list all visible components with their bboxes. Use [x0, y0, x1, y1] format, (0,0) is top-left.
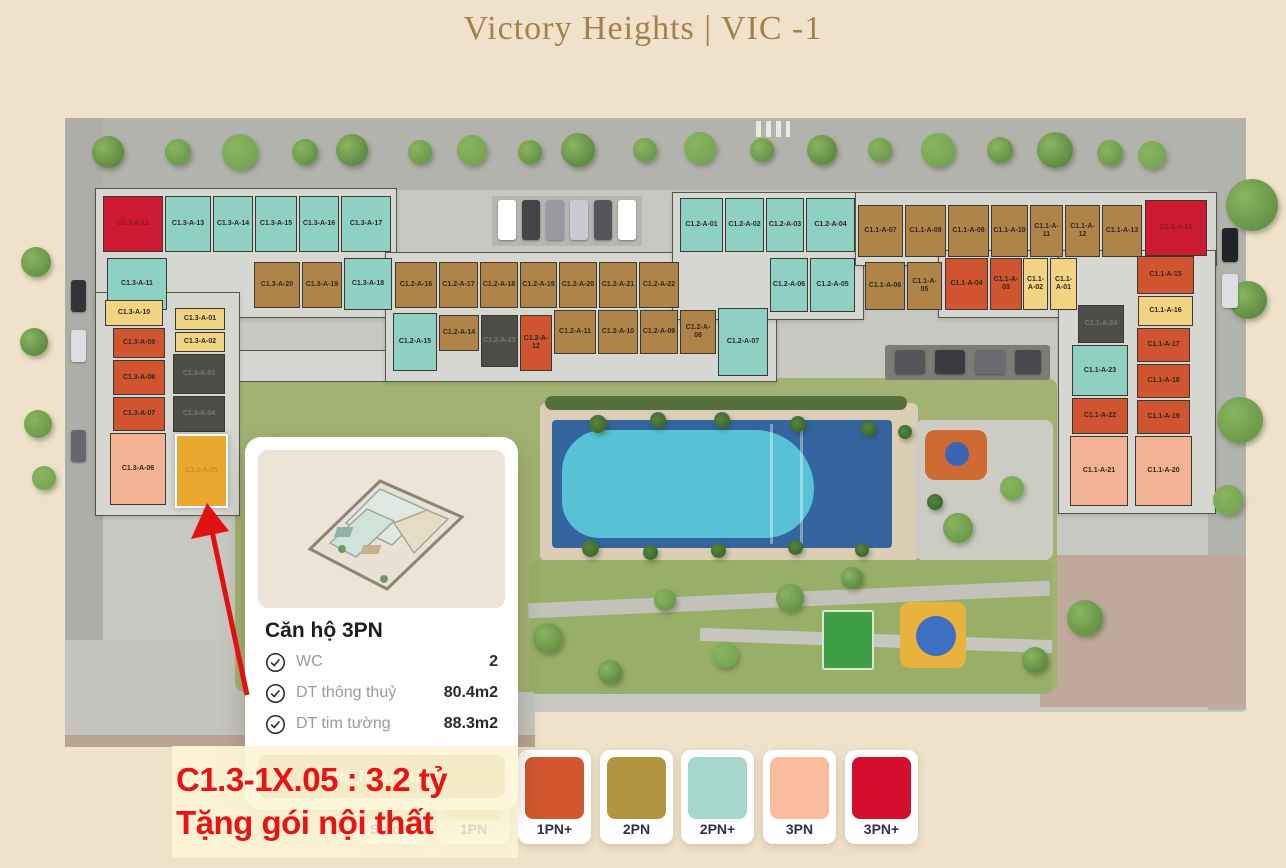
spec-value: 88.3m2 — [444, 715, 498, 733]
legend-swatch — [607, 757, 666, 819]
map-unit-C1.3-A-16[interactable]: C1.3-A-16 — [299, 196, 339, 252]
tree-icon — [987, 137, 1013, 163]
map-unit-C1.1-A-08[interactable]: C1.1-A-08 — [905, 205, 946, 257]
tree-icon — [561, 133, 595, 167]
map-unit-C1.1-A-12[interactable]: C1.1-A-12 — [1065, 205, 1100, 257]
map-unit-C1.1-A-21[interactable]: C1.1-A-21 — [1070, 436, 1128, 506]
map-unit-C1.2-A-16[interactable]: C1.2-A-16 — [395, 262, 437, 308]
map-unit-C1.1-A-05[interactable]: C1.1-A-05 — [907, 262, 942, 310]
map-unit-C1.1-A-03[interactable]: C1.1-A-03 — [990, 258, 1022, 310]
map-unit-C1.2-A-12[interactable]: C1.2-A-12 — [520, 315, 552, 371]
tree-icon — [1213, 485, 1243, 515]
map-unit-C1.2-A-14[interactable]: C1.2-A-14 — [439, 315, 479, 351]
map-unit-C1.2-A-13[interactable]: C1.2-A-13 — [481, 315, 518, 367]
map-unit-C1.3-A-08[interactable]: C1.3-A-08 — [113, 360, 165, 395]
map-unit-C1.3-A-06[interactable]: C1.3-A-06 — [110, 433, 166, 505]
car-icon — [570, 200, 588, 240]
tree-icon — [807, 135, 837, 165]
map-unit-C1.2-A-08[interactable]: C1.2-A-08 — [680, 310, 716, 354]
map-unit-C1.3-A-18[interactable]: C1.3-A-18 — [344, 258, 392, 310]
car-icon — [895, 350, 925, 374]
map-unit-C1.1-A-02[interactable]: C1.1-A-02 — [1023, 258, 1048, 310]
map-unit-C1.2-A-22[interactable]: C1.2-A-22 — [639, 262, 679, 308]
legend-label: 3PN+ — [845, 821, 918, 837]
map-unit-C1.1-A-23[interactable]: C1.1-A-23 — [1072, 345, 1128, 396]
tree-icon — [841, 567, 863, 589]
map-unit-C1.3-A-17[interactable]: C1.3-A-17 — [341, 196, 391, 252]
map-unit-C1.1-A-13[interactable]: C1.1-A-13 — [1102, 205, 1142, 257]
map-unit-C1.2-A-06[interactable]: C1.2-A-06 — [770, 258, 808, 312]
car-icon — [594, 200, 612, 240]
pool-lane-line — [770, 424, 773, 544]
map-unit-C1.2-A-03[interactable]: C1.2-A-03 — [766, 198, 804, 252]
building-corridor — [230, 350, 394, 382]
tree-icon — [165, 139, 191, 165]
palm-tree-icon — [927, 494, 943, 510]
map-unit-C1.2-A-04[interactable]: C1.2-A-04 — [806, 198, 855, 252]
popup-unit-title: Căn hộ 3PN — [265, 619, 383, 643]
palm-tree-icon — [855, 543, 869, 557]
map-unit-C1.3-A-13[interactable]: C1.3-A-13 — [165, 196, 211, 252]
map-unit-C1.3-A-14[interactable]: C1.3-A-14 — [213, 196, 253, 252]
legend-swatch — [770, 757, 829, 819]
tree-icon — [336, 134, 368, 166]
map-unit-C1.2-A-20[interactable]: C1.2-A-20 — [559, 262, 597, 308]
car-icon — [498, 200, 516, 240]
legend-label: 2PN — [600, 821, 673, 837]
tree-icon — [457, 135, 487, 165]
map-unit-C1.2-A-18[interactable]: C1.2-A-18 — [480, 262, 518, 308]
tree-icon — [92, 136, 124, 168]
legend-item-2pn-plus[interactable]: 2PN+ — [681, 750, 754, 844]
tree-icon — [776, 584, 804, 612]
palm-tree-icon — [861, 421, 876, 436]
map-unit-C1.2-A-19[interactable]: C1.2-A-19 — [520, 262, 557, 308]
tree-icon — [408, 140, 432, 164]
promo-price-line: C1.3-1X.05 : 3.2 tỷ — [176, 759, 514, 802]
tree-icon — [1226, 179, 1278, 231]
map-unit-C1.1-A-09[interactable]: C1.1-A-09 — [948, 205, 989, 257]
spec-label: DT tim tường — [296, 715, 444, 733]
map-unit-C1.3-A-10[interactable]: C1.3-A-10 — [105, 300, 163, 326]
tree-icon — [292, 139, 318, 165]
map-unit-C1.1-A-17[interactable]: C1.1-A-17 — [1137, 328, 1190, 362]
map-unit-C1.1-A-01[interactable]: C1.1-A-01 — [1050, 258, 1077, 310]
map-unit-C1.1-A-20[interactable]: C1.1-A-20 — [1135, 436, 1192, 506]
legend-swatch — [852, 757, 911, 819]
legend-item-2pn[interactable]: 2PN — [600, 750, 673, 844]
map-unit-C1.1-A-11[interactable]: C1.1-A-11 — [1030, 205, 1063, 257]
map-unit-C1.1-A-06[interactable]: C1.1-A-06 — [865, 262, 905, 310]
map-unit-C1.1-A-10[interactable]: C1.1-A-10 — [991, 205, 1028, 257]
spec-row-dt-thông-thuỷ: DT thông thuỷ 80.4m2 — [265, 680, 498, 706]
map-unit-C1.1-A-19[interactable]: C1.1-A-19 — [1137, 400, 1190, 434]
tree-icon — [943, 513, 973, 543]
palm-tree-icon — [714, 412, 730, 428]
site-plan: C1.3-A-12C1.3-A-13C1.3-A-14C1.3-A-15C1.3… — [0, 0, 1286, 868]
map-unit-C1.2-A-21[interactable]: C1.2-A-21 — [599, 262, 637, 308]
map-unit-C1.2-A-02[interactable]: C1.2-A-02 — [725, 198, 764, 252]
tree-icon — [598, 660, 622, 684]
promo-gift-line: Tặng gói nội thất — [176, 802, 514, 845]
map-unit-C1.3-A-03[interactable]: C1.3-A-03 — [173, 354, 225, 394]
spec-row-wc: WC 2 — [265, 649, 498, 675]
map-unit-C1.1-A-04[interactable]: C1.1-A-04 — [945, 258, 988, 310]
map-unit-C1.3-A-05[interactable]: C1.3-A-05 — [175, 434, 228, 508]
car-icon — [975, 350, 1005, 374]
spec-value: 2 — [489, 653, 498, 671]
car-icon — [522, 200, 540, 240]
spec-value: 80.4m2 — [444, 684, 498, 702]
legend-swatch — [688, 757, 747, 819]
spec-label: DT thông thuỷ — [296, 684, 444, 702]
crosswalk-marking — [756, 121, 790, 137]
check-circle-icon — [265, 652, 286, 673]
car-icon — [1015, 350, 1041, 374]
pool-shallow-area — [562, 430, 814, 538]
map-unit-C1.2-A-11[interactable]: C1.2-A-11 — [554, 310, 596, 354]
map-unit-C1.1-A-07[interactable]: C1.1-A-07 — [858, 205, 903, 257]
tree-icon — [1000, 476, 1024, 500]
car-icon — [71, 430, 86, 462]
tree-icon — [32, 466, 56, 490]
hedge — [545, 396, 907, 410]
promo-overlay: C1.3-1X.05 : 3.2 tỷ Tặng gói nội thất — [172, 746, 518, 858]
legend-item-3pn-plus[interactable]: 3PN+ — [845, 750, 918, 844]
legend-label: 2PN+ — [681, 821, 754, 837]
map-unit-C1.1-A-16[interactable]: C1.1-A-16 — [1138, 296, 1193, 326]
map-unit-C1.2-A-10[interactable]: C1.2-A-10 — [598, 310, 638, 354]
palm-tree-icon — [711, 543, 726, 558]
map-unit-C1.3-A-07[interactable]: C1.3-A-07 — [113, 397, 165, 431]
palm-tree-icon — [650, 412, 666, 428]
brick-plaza-bottom-right — [1040, 555, 1246, 707]
palm-tree-icon — [589, 415, 607, 433]
tree-icon — [654, 589, 676, 611]
map-unit-C1.1-A-18[interactable]: C1.1-A-18 — [1137, 364, 1190, 398]
car-icon — [71, 280, 86, 312]
tree-icon — [1138, 141, 1166, 169]
check-circle-icon — [265, 683, 286, 704]
map-unit-C1.1-A-15[interactable]: C1.1-A-15 — [1137, 256, 1194, 294]
map-unit-C1.1-A-24[interactable]: C1.1-A-24 — [1078, 305, 1124, 343]
legend-label: 3PN — [763, 821, 836, 837]
playground-equipment — [916, 616, 956, 656]
palm-tree-icon — [788, 540, 803, 555]
pool-lane-line — [800, 424, 803, 544]
tree-icon — [24, 410, 52, 438]
spec-label: WC — [296, 653, 489, 671]
legend-item-1pn-plus[interactable]: 1PN+ — [518, 750, 591, 844]
tree-icon — [1067, 600, 1103, 636]
car-icon — [618, 200, 636, 240]
spec-row-dt-tim-tường: DT tim tường 88.3m2 — [265, 711, 498, 737]
map-unit-C1.3-A-09[interactable]: C1.3-A-09 — [113, 328, 165, 358]
tree-icon — [868, 138, 892, 162]
map-unit-C1.3-A-15[interactable]: C1.3-A-15 — [255, 196, 297, 252]
mini-football-pitch — [822, 610, 874, 670]
palm-tree-icon — [582, 540, 599, 557]
map-unit-C1.3-A-19[interactable]: C1.3-A-19 — [302, 262, 342, 308]
legend-swatch — [525, 757, 584, 819]
tree-icon — [518, 140, 542, 164]
tree-icon — [20, 328, 48, 356]
map-unit-C1.3-A-02[interactable]: C1.3-A-02 — [175, 332, 225, 352]
palm-tree-icon — [643, 545, 658, 560]
car-icon — [935, 350, 965, 374]
playground-equipment — [945, 442, 969, 466]
tree-icon — [21, 247, 51, 277]
tree-icon — [1217, 397, 1263, 443]
tree-icon — [222, 134, 258, 170]
map-unit-C1.2-A-15[interactable]: C1.2-A-15 — [393, 313, 437, 371]
map-unit-C1.3-A-01[interactable]: C1.3-A-01 — [175, 308, 225, 330]
map-unit-C1.3-A-12[interactable]: C1.3-A-12 — [103, 196, 163, 252]
check-circle-icon — [265, 714, 286, 735]
tree-icon — [921, 133, 955, 167]
car-icon — [1222, 228, 1238, 262]
tree-icon — [533, 623, 563, 653]
tree-icon — [684, 132, 716, 164]
floorplan-3d-image — [258, 450, 505, 608]
tree-icon — [750, 138, 774, 162]
car-icon — [71, 330, 86, 362]
map-unit-C1.3-A-04[interactable]: C1.3-A-04 — [173, 396, 225, 432]
car-icon — [1222, 274, 1238, 308]
map-unit-C1.1-A-14[interactable]: C1.1-A-14 — [1145, 200, 1207, 256]
tree-icon — [712, 642, 738, 668]
map-unit-C1.3-A-20[interactable]: C1.3-A-20 — [254, 262, 300, 308]
legend-label: 1PN+ — [518, 821, 591, 837]
tree-icon — [1097, 140, 1123, 166]
map-unit-C1.2-A-01[interactable]: C1.2-A-01 — [680, 198, 723, 252]
map-unit-C1.1-A-22[interactable]: C1.1-A-22 — [1072, 398, 1128, 434]
tree-icon — [633, 138, 657, 162]
legend-item-3pn[interactable]: 3PN — [763, 750, 836, 844]
car-icon — [546, 200, 564, 240]
tree-icon — [1037, 132, 1073, 168]
palm-tree-icon — [790, 416, 806, 432]
map-unit-C1.2-A-17[interactable]: C1.2-A-17 — [439, 262, 478, 308]
tree-icon — [1022, 647, 1048, 673]
page: Victory Heights | VIC -1 — [0, 0, 1286, 868]
palm-tree-icon — [898, 425, 912, 439]
map-unit-C1.2-A-07[interactable]: C1.2-A-07 — [718, 308, 768, 376]
map-unit-C1.2-A-09[interactable]: C1.2-A-09 — [640, 310, 678, 354]
map-unit-C1.2-A-05[interactable]: C1.2-A-05 — [810, 258, 855, 312]
